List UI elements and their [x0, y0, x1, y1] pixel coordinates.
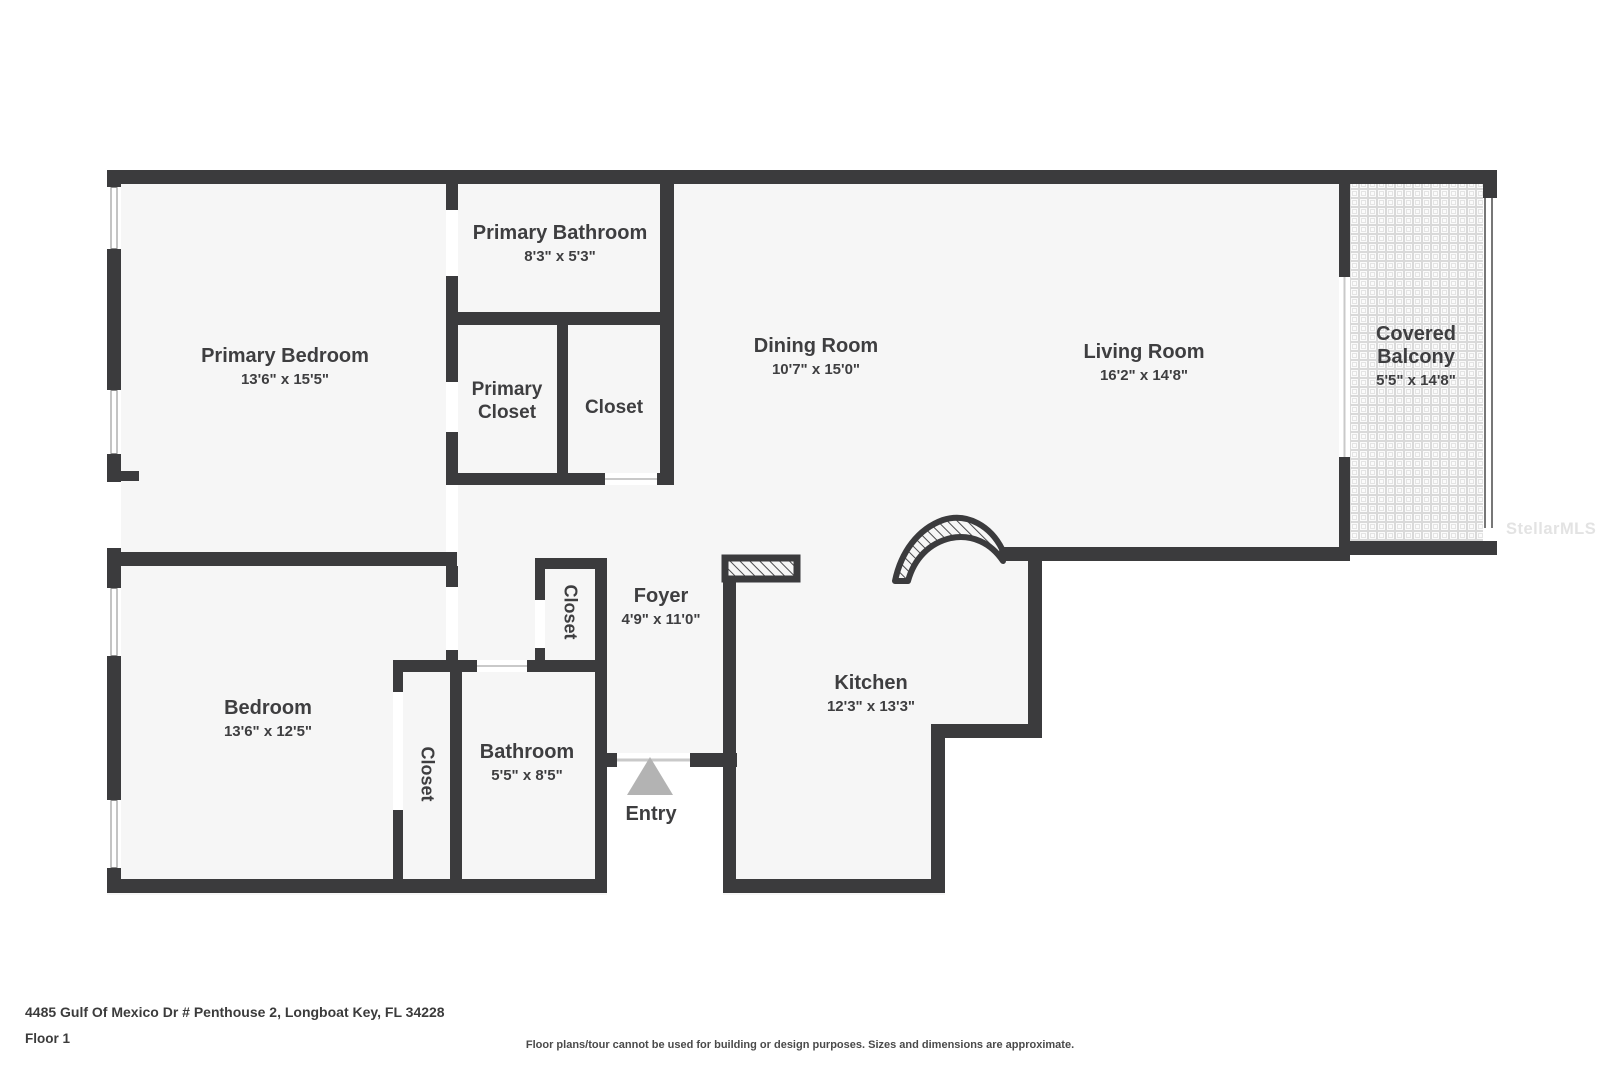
room-label-primary-closet: Primary Closet	[472, 378, 543, 424]
room-dims: 8'3" x 5'3"	[473, 245, 648, 268]
wall-kitchen-notch-top	[931, 724, 1042, 738]
door-foyer-closet	[535, 600, 545, 648]
wall-primary-bath-bottom	[457, 312, 674, 325]
door-bedroom	[446, 587, 458, 650]
wall-bathroom-top	[452, 660, 607, 672]
room-label-primary-bathroom: Primary Bathroom 8'3" x 5'3"	[473, 222, 648, 268]
wall-bathroom-left	[450, 672, 462, 879]
room-name: Closet	[585, 396, 643, 419]
wall-balcony-divider-top	[1339, 184, 1350, 277]
wall-primary-divider-a	[446, 184, 458, 210]
door-primary-bathroom	[446, 210, 458, 276]
wall-bathroom-right	[595, 558, 607, 879]
room-label-closet-bedroom: Closet	[417, 746, 438, 801]
door-bathroom	[477, 660, 527, 672]
room-name: Bathroom	[480, 741, 574, 764]
window-glyph	[111, 588, 118, 656]
wall-foyer-closet-left-b	[535, 648, 545, 672]
room-label-foyer: Foyer 4'9" x 11'0"	[622, 585, 701, 631]
window-glyph	[111, 187, 118, 249]
wall-kitchen-right-upper	[1028, 548, 1042, 738]
wall-entry-a	[595, 753, 617, 767]
entry-arrow-icon	[627, 757, 673, 795]
door-bedroom-closet	[393, 692, 403, 810]
wall-foyer-closet-top	[535, 558, 607, 569]
wall-balcony-divider-bottom	[1339, 457, 1350, 555]
room-dims: 5'5" x 14'8"	[1376, 369, 1456, 392]
kitchen-passthrough-window	[725, 558, 797, 579]
window-primary-bedroom-2	[107, 390, 121, 454]
room-name-line1: Primary	[472, 378, 543, 401]
wall-hall-left-a	[446, 566, 458, 587]
room-name-line1: Covered	[1376, 323, 1456, 346]
watermark: StellarMLS	[1506, 520, 1596, 539]
door-balcony-slider	[1339, 277, 1350, 457]
room-dims: 16'2" x 14'8"	[1083, 364, 1204, 387]
room-dims: 5'5" x 8'5"	[480, 764, 574, 787]
wall-primary-bath-right	[660, 184, 674, 485]
room-label-dining-room: Dining Room 10'7" x 15'0"	[754, 335, 878, 381]
room-label-living-room: Living Room 16'2" x 14'8"	[1083, 341, 1204, 387]
room-dims: 4'9" x 11'0"	[622, 608, 701, 631]
door-primary-closet	[446, 382, 458, 432]
wall-foyer-closet-left-a	[535, 558, 545, 600]
room-label-closet-top: Closet	[585, 396, 643, 419]
room-name-line2: Closet	[472, 401, 543, 424]
wall-bedroom-closet-left-b	[393, 810, 403, 879]
window-bedroom-2	[107, 800, 121, 868]
wall-closet-divider	[557, 325, 568, 473]
room-name-line2: Balcony	[1376, 346, 1456, 369]
room-name: Living Room	[1083, 341, 1204, 364]
wall-balcony-bottom	[1340, 541, 1497, 555]
room-name: Dining Room	[754, 335, 878, 358]
door-primary-bedroom	[446, 485, 458, 552]
entry-label: Entry	[625, 803, 676, 826]
room-name: Primary Bathroom	[473, 222, 648, 245]
floor-number-label: Floor 1	[25, 1031, 70, 1046]
address-line: 4485 Gulf Of Mexico Dr # Penthouse 2, Lo…	[25, 1004, 445, 1020]
wall-balcony-corner	[1483, 170, 1497, 198]
door-closet-top	[605, 473, 657, 485]
room-label-closet-foyer: Closet	[560, 584, 581, 639]
window-glyph	[111, 390, 118, 454]
wall-kitchen-left	[723, 581, 736, 879]
wall-primary-divider-b	[446, 276, 458, 382]
room-dims: 12'3" x 13'3"	[827, 695, 915, 718]
balcony-railing-cap	[1483, 528, 1497, 541]
wall-bedroom-closet-top	[393, 660, 458, 672]
window-glyph	[111, 800, 118, 868]
room-label-bedroom: Bedroom 13'6" x 12'5"	[224, 697, 312, 743]
room-label-kitchen: Kitchen 12'3" x 13'3"	[827, 672, 915, 718]
wall-top	[107, 170, 1497, 184]
wall-bedrooms-divider	[107, 552, 457, 566]
floor-plan: Primary Bedroom 13'6" x 15'5" Primary Ba…	[0, 0, 1600, 1066]
window-primary-bedroom-3	[107, 482, 121, 548]
room-name: Primary Bedroom	[201, 345, 369, 368]
plan-decoration-layer	[0, 0, 1600, 1066]
window-primary-bedroom-1	[107, 187, 121, 249]
window-bedroom-1	[107, 588, 121, 656]
wall-window-stub	[121, 471, 139, 481]
wall-kitchen-right-lower	[931, 738, 945, 893]
kitchen-arched-wall	[895, 518, 1003, 581]
room-label-primary-bedroom: Primary Bedroom 13'6" x 15'5"	[201, 345, 369, 391]
room-name: Kitchen	[827, 672, 915, 695]
room-name: Foyer	[622, 585, 701, 608]
room-dims: 13'6" x 15'5"	[201, 368, 369, 391]
room-label-bathroom: Bathroom 5'5" x 8'5"	[480, 741, 574, 787]
room-label-covered-balcony: Covered Balcony 5'5" x 14'8"	[1376, 323, 1456, 392]
wall-living-bottom	[1000, 547, 1350, 561]
wall-kitchen-bottom	[723, 879, 945, 893]
wall-bottom-left	[107, 879, 607, 893]
room-dims: 13'6" x 12'5"	[224, 720, 312, 743]
disclaimer-text: Floor plans/tour cannot be used for buil…	[526, 1039, 1074, 1051]
room-name: Bedroom	[224, 697, 312, 720]
balcony-railing	[1484, 198, 1493, 528]
room-dims: 10'7" x 15'0"	[754, 358, 878, 381]
